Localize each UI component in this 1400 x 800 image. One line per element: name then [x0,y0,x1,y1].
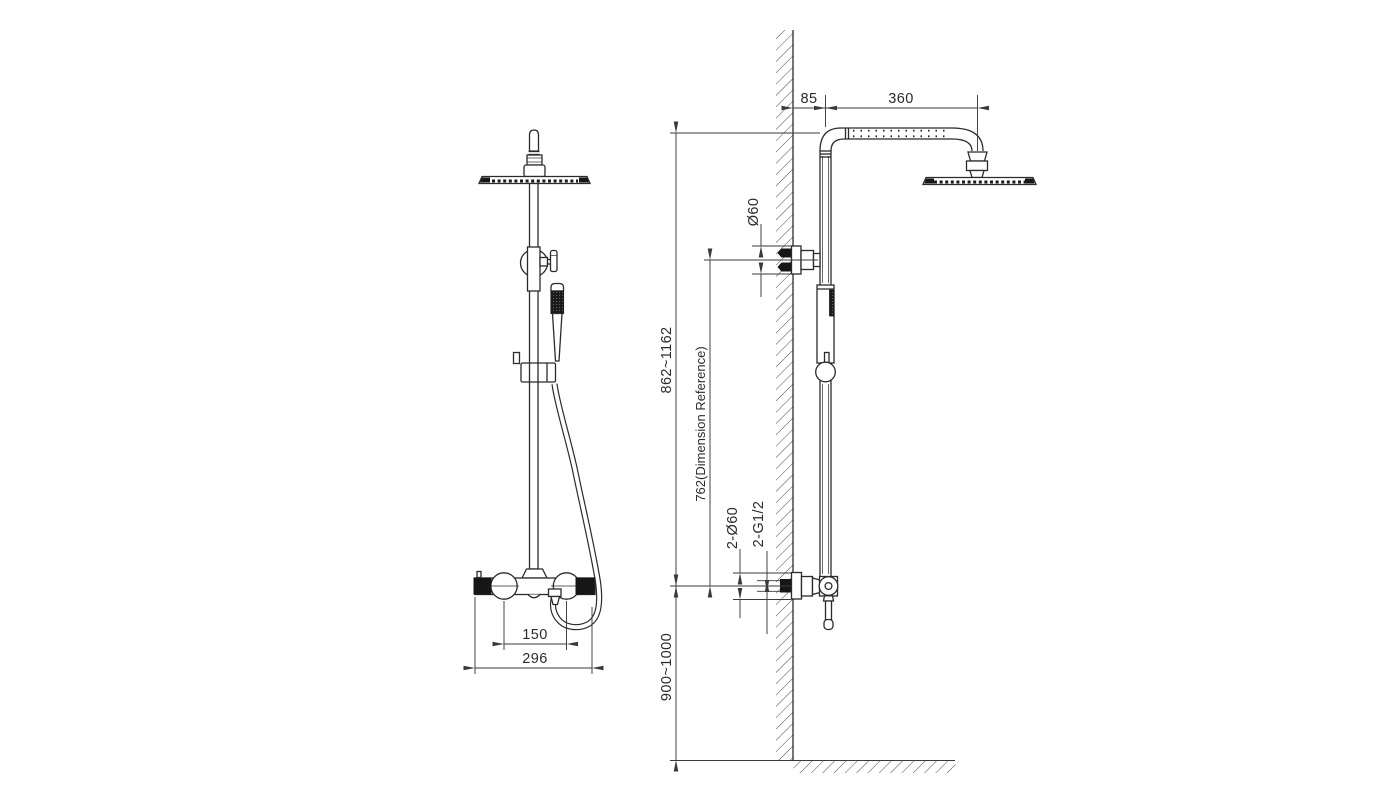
dim-label-flange-diameters: 2-Ø60 [725,507,741,549]
overhead-shower-front [479,130,590,184]
dim-label-bracket-diameter: Ø60 [746,198,762,227]
technical-drawing: 85 360 Ø60 862~1162 762(Dimension Refere… [0,0,1400,800]
dim-label-dimension-reference: 762(Dimension Reference) [693,346,708,501]
dimension-annotations: 85 360 Ø60 862~1162 762(Dimension Refere… [475,91,978,761]
dim-label-riser-height-range: 862~1162 [659,326,675,393]
floor-section [794,761,956,773]
hand-shower-front [551,284,564,362]
hose-nut [549,589,562,597]
dim-label-valve-install-height: 900~1000 [659,633,675,701]
front-view [474,130,600,627]
dim-label-wall-offset: 85 [801,91,818,107]
dim-label-inlet-center-distance: 150 [522,627,547,643]
drawing-canvas: 85 360 Ø60 862~1162 762(Dimension Refere… [0,0,1400,800]
hand-shower-handle [553,314,563,362]
diverter-knob [551,251,558,272]
hand-shower-head [551,291,564,314]
mixer-right-handle [576,578,595,595]
shower-arm-side [841,128,983,151]
side-view [757,30,1036,773]
mixer-left-handle [474,578,492,595]
dim-label-valve-overall-width: 296 [522,651,547,667]
mixer-valve-front [474,569,596,605]
dim-label-arm-length: 360 [888,91,913,107]
dim-label-inlet-thread: 2-G1/2 [751,501,767,548]
wall-section [776,30,793,761]
overhead-shower-side [923,152,1036,185]
slider-knob-side [816,362,836,382]
hand-shower-side [816,285,836,382]
mixer-valve-side [757,573,838,630]
mixer-lever-side [826,601,832,620]
